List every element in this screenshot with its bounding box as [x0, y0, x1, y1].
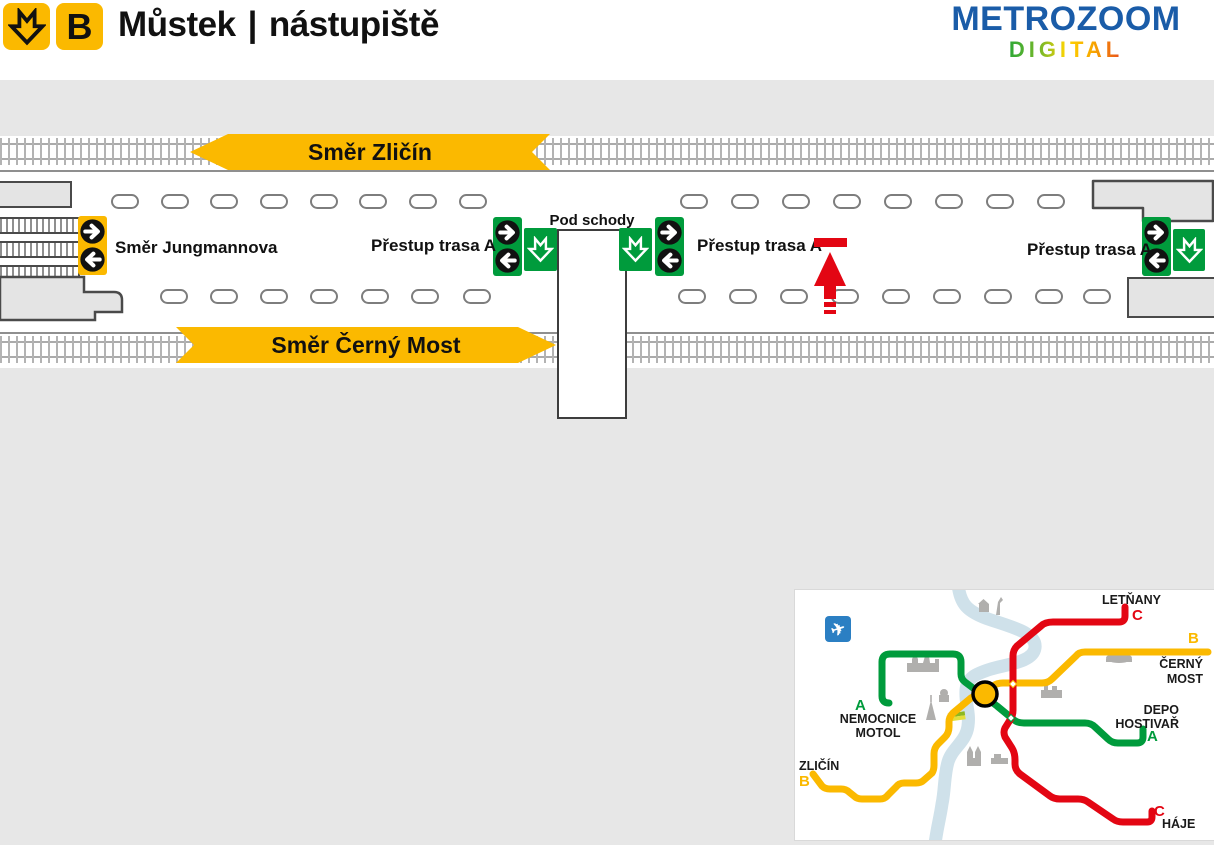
line-letter-c: C — [1132, 607, 1143, 624]
bench — [310, 194, 338, 209]
landmark-cathedral-icon — [967, 746, 981, 766]
bench — [731, 194, 759, 209]
station-label-depo: DEPO — [1144, 703, 1180, 717]
escalator-strip — [0, 241, 80, 258]
bench — [260, 289, 288, 304]
bench — [411, 289, 439, 304]
arrow-right-icon — [79, 218, 106, 245]
direction-banner-zlicin-label: Směr Zličín — [308, 139, 432, 165]
stairwell — [557, 229, 627, 419]
transfer-sign-arrows-left — [493, 217, 522, 276]
station-label-nemocnice: NEMOCNICE — [840, 712, 916, 726]
current-position-marker-icon — [806, 236, 854, 318]
label-transfer-right: Přestup trasa A — [1027, 240, 1152, 260]
bench — [678, 289, 706, 304]
bench — [986, 194, 1014, 209]
upper-wall-zone — [0, 80, 1214, 136]
bench — [1083, 289, 1111, 304]
escalator-strip — [0, 217, 80, 234]
airport-icon: ✈ — [825, 616, 851, 642]
label-jungmannova: Směr Jungmannova — [115, 238, 278, 258]
arrow-left-icon — [656, 247, 683, 274]
line-letter-a: A — [1147, 728, 1158, 745]
track-direction-zlicin — [0, 138, 1214, 165]
structure-bottom-right — [1127, 277, 1214, 318]
station-label-cerny-most: MOST — [1167, 672, 1203, 686]
metro-arrow-icon — [622, 236, 649, 263]
landmark-petrin-tower-icon — [926, 695, 936, 720]
landmark-station-icon — [991, 754, 1008, 764]
metro-entrance-sign — [524, 228, 557, 271]
direction-banner-cerny-most-label: Směr Černý Most — [271, 332, 460, 358]
bench — [933, 289, 961, 304]
metro-arrow-icon — [1176, 237, 1203, 264]
label-under-stairs: Pod schody — [545, 212, 639, 229]
bench — [780, 289, 808, 304]
label-transfer-middle: Přestup trasa A — [697, 236, 822, 256]
station-label-haje: HÁJE — [1162, 816, 1195, 831]
brand-name: METROZOOM — [926, 2, 1206, 38]
bench — [361, 289, 389, 304]
bench — [310, 289, 338, 304]
bench — [680, 194, 708, 209]
station-name: Můstek — [118, 5, 236, 44]
platform-edge-top — [0, 170, 1214, 172]
title-separator: | — [248, 5, 257, 44]
line-badge: B — [56, 3, 103, 50]
bench — [161, 194, 189, 209]
line-letter-b: B — [1188, 630, 1199, 647]
bench — [729, 289, 757, 304]
arrow-right-icon — [656, 219, 683, 246]
metro-entrance-sign — [1173, 229, 1205, 271]
metro-arrow-icon — [527, 236, 554, 263]
signage-screen: B Můstek|nástupiště METROZOOM DIGITAL Sm… — [0, 0, 1214, 845]
bench — [833, 194, 861, 209]
direction-banner-zlicin: Směr Zličín — [190, 134, 550, 170]
bench — [882, 289, 910, 304]
station-label-cerny-most: ČERNÝ — [1159, 656, 1203, 671]
bench — [160, 289, 188, 304]
line-letter-b: B — [799, 773, 810, 790]
transfer-sign-arrows-middle — [655, 217, 684, 276]
bench — [210, 194, 238, 209]
metro-arrow-icon — [8, 8, 46, 46]
station-label-letnany: LETŇANY — [1102, 592, 1162, 607]
arrow-right-icon — [494, 219, 521, 246]
structure-bottom-left — [0, 275, 130, 325]
exit-sign-jungmannova — [78, 216, 107, 275]
bench — [359, 194, 387, 209]
bench — [984, 289, 1012, 304]
bench — [1037, 194, 1065, 209]
direction-banner-cerny-most: Směr Černý Most — [176, 327, 556, 363]
arrow-left-icon — [79, 246, 106, 273]
station-label-zlicin: ZLIČÍN — [799, 758, 839, 773]
landmark-church-dome-icon — [939, 689, 949, 702]
bench — [1035, 289, 1063, 304]
label-transfer-left: Přestup trasa A — [371, 236, 496, 256]
brand-logo: METROZOOM DIGITAL — [926, 2, 1206, 61]
station-label-nemocnice: MOTOL — [856, 726, 901, 740]
page-title: Můstek|nástupiště — [118, 5, 439, 45]
bench — [409, 194, 437, 209]
bench — [459, 194, 487, 209]
area-name: nástupiště — [269, 5, 439, 44]
arrow-left-icon — [494, 247, 521, 274]
network-minimap: ✈ LETŇANY C B ČERNÝ MOST DEPO HOSTIVAŘ A… — [795, 590, 1214, 840]
bench — [210, 289, 238, 304]
current-station-marker — [973, 682, 997, 706]
bench — [111, 194, 139, 209]
bench — [935, 194, 963, 209]
metro-entrance-sign — [619, 228, 652, 271]
brand-subtitle: DIGITAL — [1009, 38, 1123, 61]
structure-top-left — [0, 181, 72, 208]
bench — [782, 194, 810, 209]
bench — [260, 194, 288, 209]
line-c-path — [1004, 607, 1152, 822]
metro-logo-icon — [3, 3, 50, 50]
bench — [884, 194, 912, 209]
bench — [463, 289, 491, 304]
